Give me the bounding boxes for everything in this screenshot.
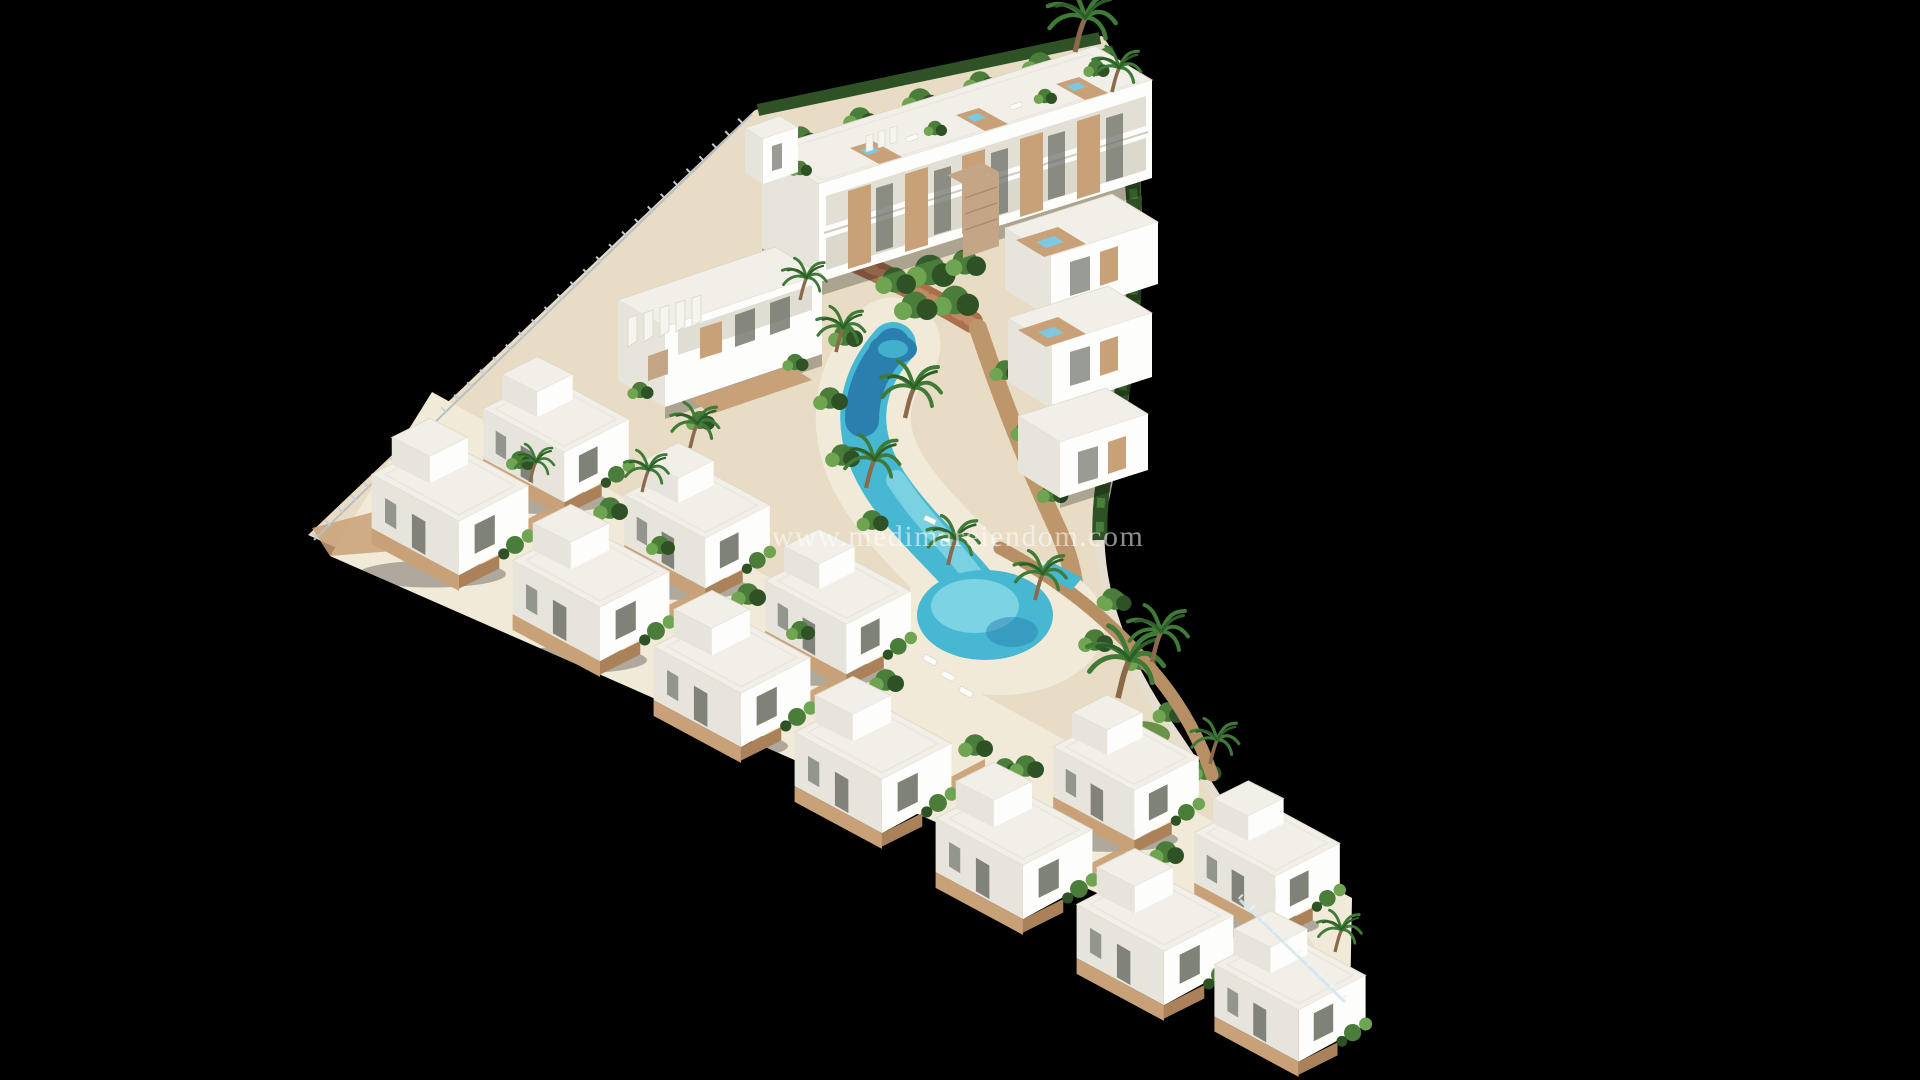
- stair-tower: [745, 116, 798, 184]
- site-render: www.medimareiendom.com: [0, 0, 1920, 1080]
- render-stage: www.medimareiendom.com: [0, 0, 1920, 1080]
- watermark-text: www.medimareiendom.com: [772, 520, 1145, 553]
